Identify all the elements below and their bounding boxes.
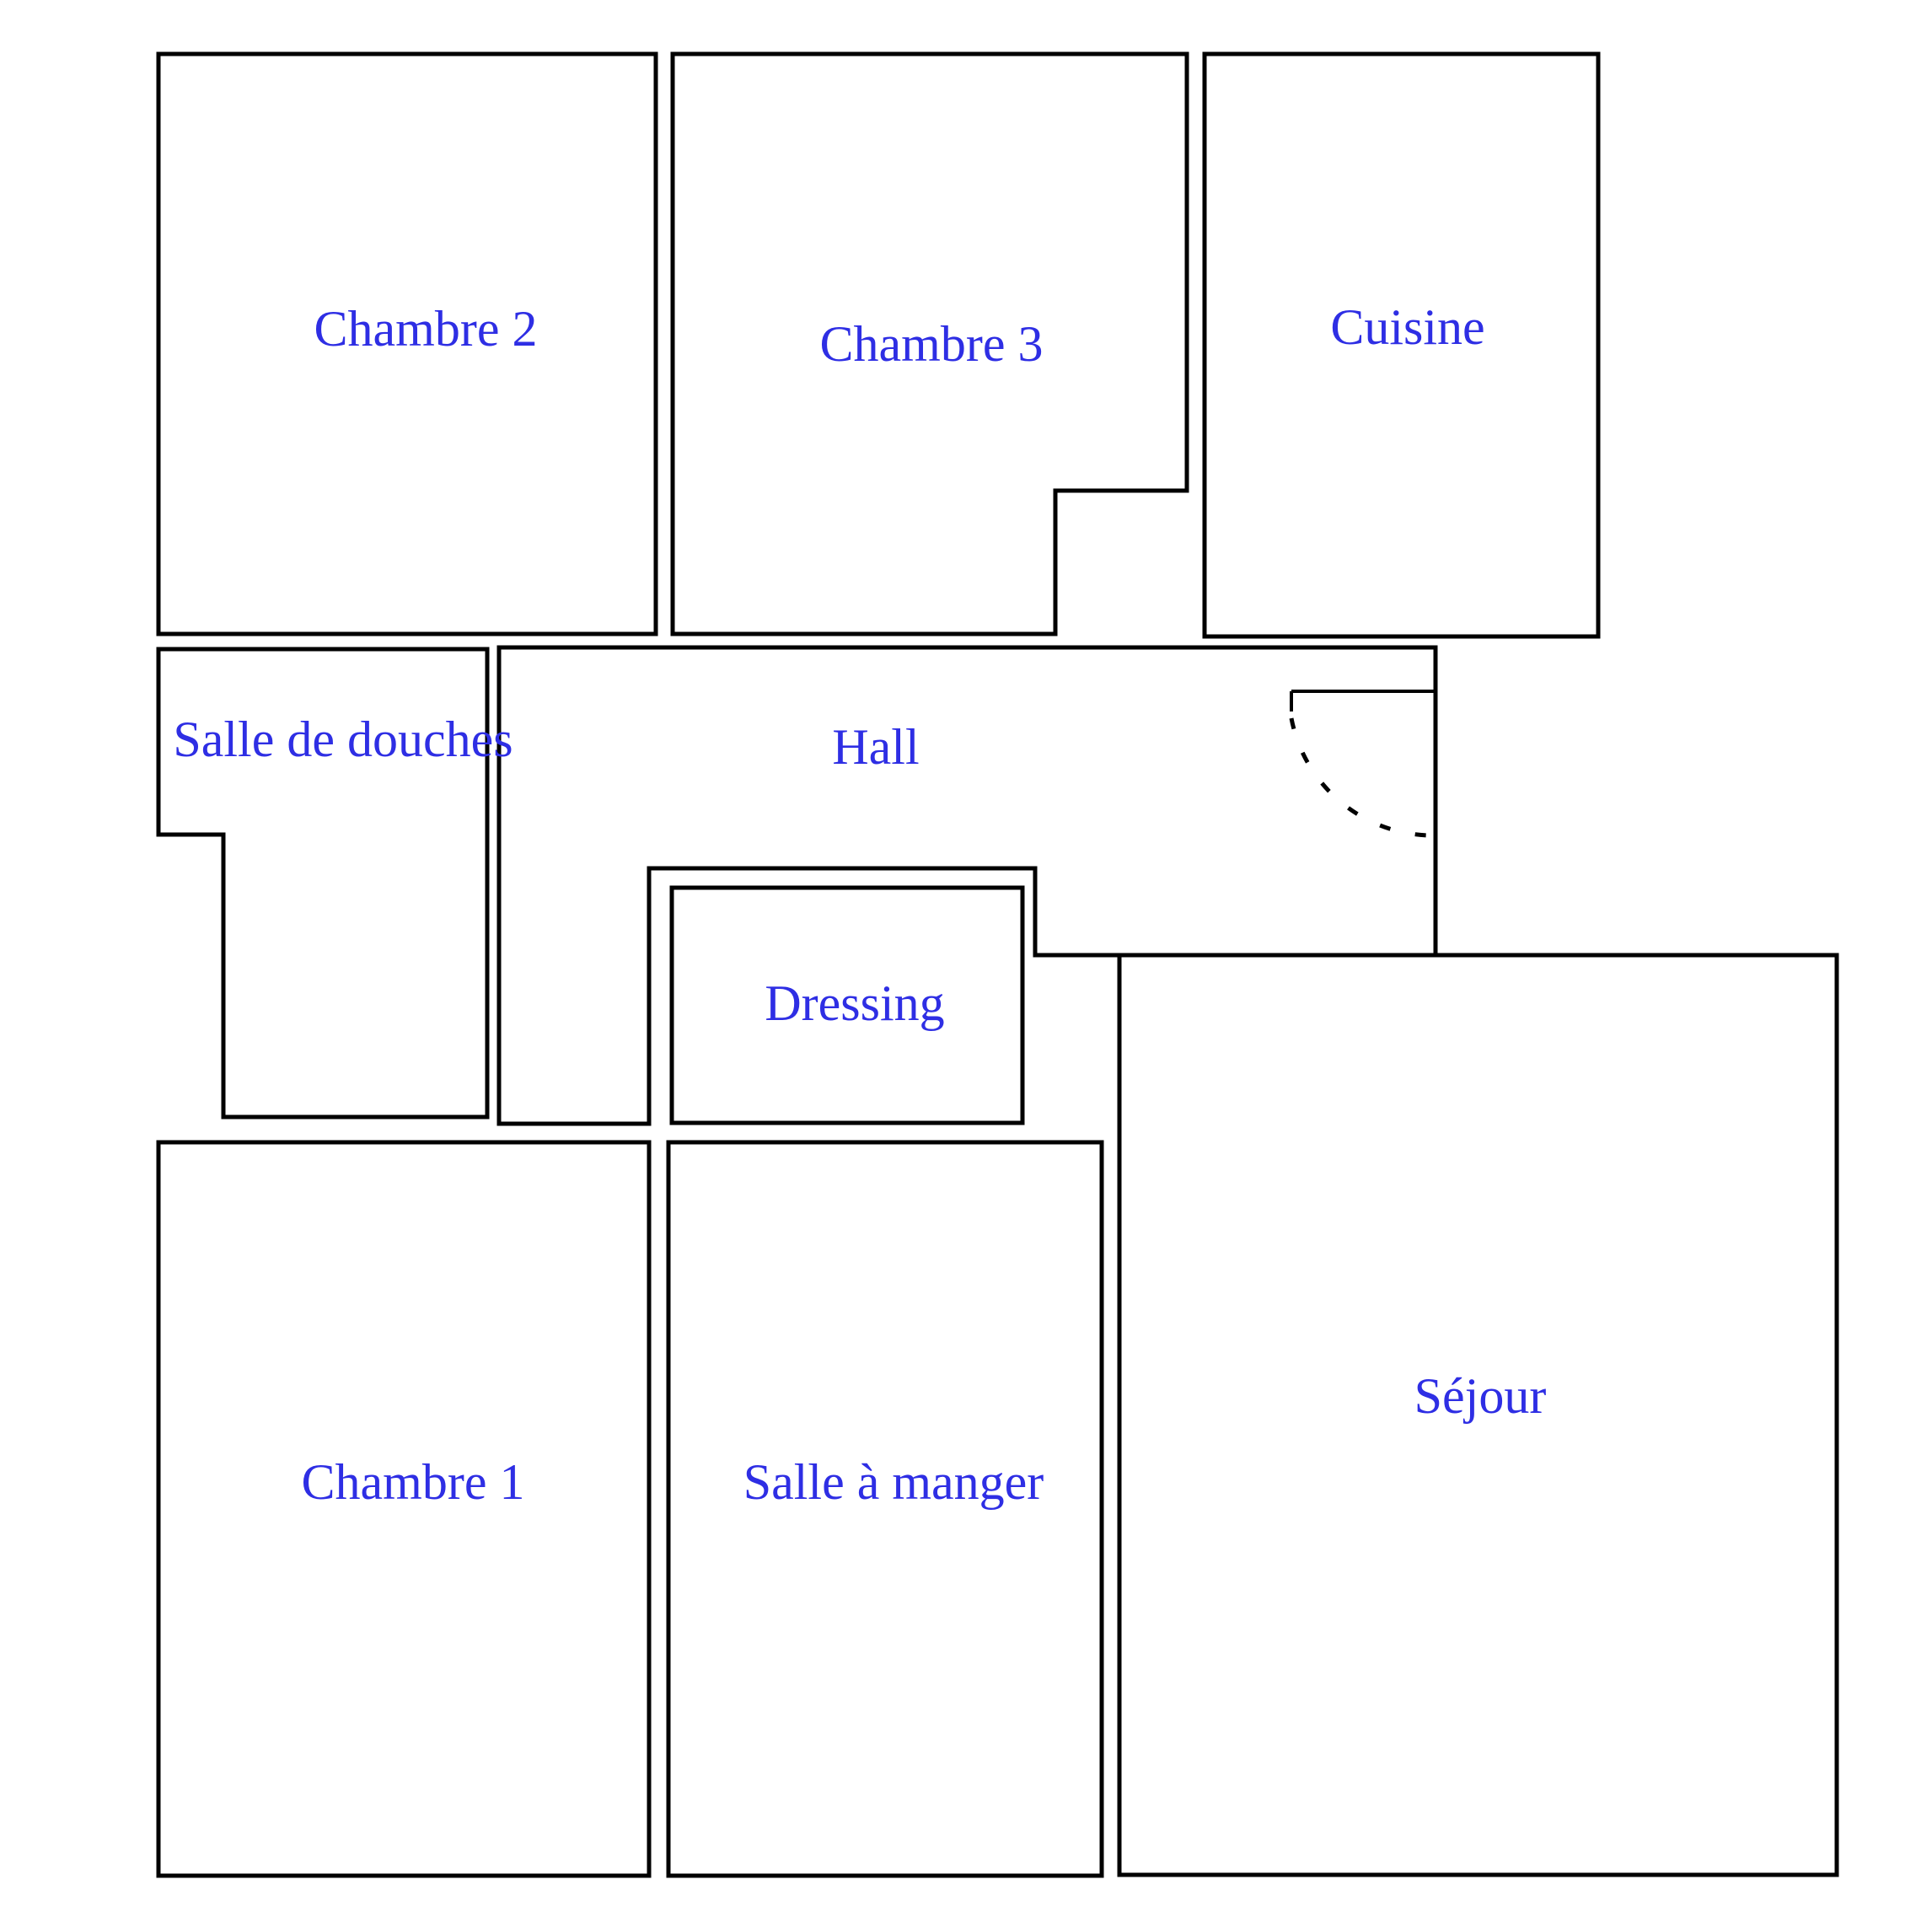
floor-plan-page: Chambre 2 Chambre 3 Cuisine Salle de dou…: [0, 0, 1932, 1917]
floor-plan-drawing: Chambre 2 Chambre 3 Cuisine Salle de dou…: [0, 0, 1932, 1917]
room-label-chambre-3: Chambre 3: [820, 316, 1044, 372]
door-swing-arc: [1291, 718, 1436, 835]
room-label-salle-de-douches: Salle de douches: [173, 711, 513, 767]
room-label-dressing: Dressing: [765, 975, 944, 1031]
room-label-salle-a-manger: Salle à manger: [743, 1454, 1044, 1510]
room-label-hall: Hall: [832, 719, 919, 775]
room-label-chambre-2: Chambre 2: [314, 301, 538, 357]
room-label-chambre-1: Chambre 1: [302, 1454, 525, 1510]
room-label-sejour: Séjour: [1414, 1368, 1547, 1424]
room-label-cuisine: Cuisine: [1330, 299, 1484, 355]
